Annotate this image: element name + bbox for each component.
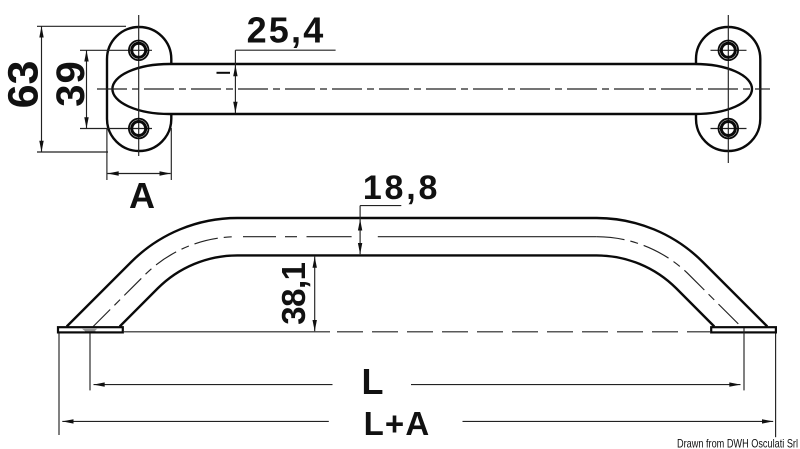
svg-text:L: L: [362, 361, 384, 402]
svg-text:A: A: [129, 175, 155, 216]
svg-text:39: 39: [49, 60, 93, 107]
svg-text:63: 63: [0, 61, 48, 109]
svg-text:L+A: L+A: [364, 405, 431, 442]
svg-text:18,8: 18,8: [363, 169, 440, 207]
svg-text:38,1: 38,1: [275, 262, 312, 324]
svg-text:25,4: 25,4: [247, 10, 326, 51]
svg-text:Drawn from DWH Osculati Srl: Drawn from DWH Osculati Srl: [677, 437, 798, 449]
